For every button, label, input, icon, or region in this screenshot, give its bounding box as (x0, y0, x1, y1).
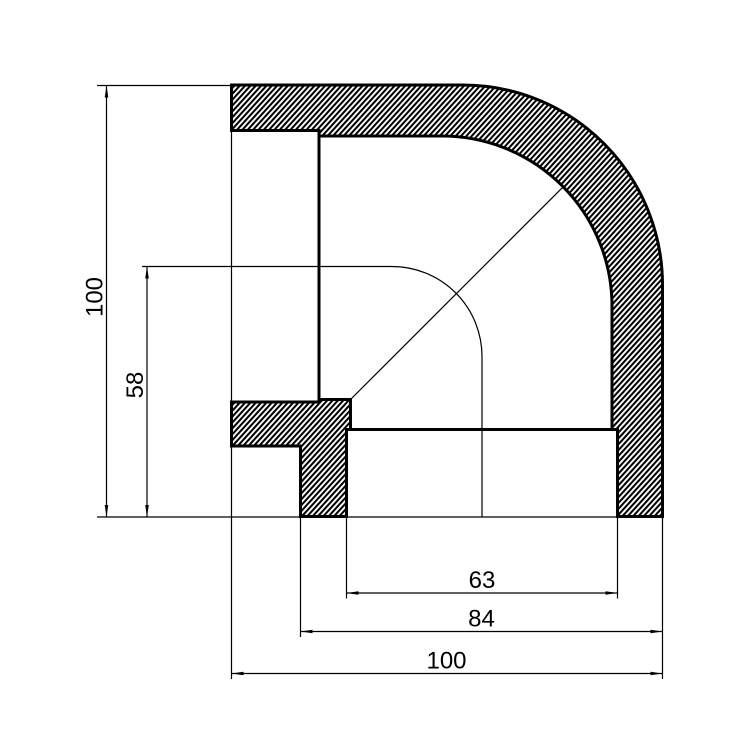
svg-text:63: 63 (469, 567, 496, 594)
svg-text:58: 58 (122, 372, 149, 399)
svg-text:100: 100 (82, 277, 109, 317)
svg-text:84: 84 (468, 606, 495, 633)
svg-text:100: 100 (426, 648, 466, 675)
